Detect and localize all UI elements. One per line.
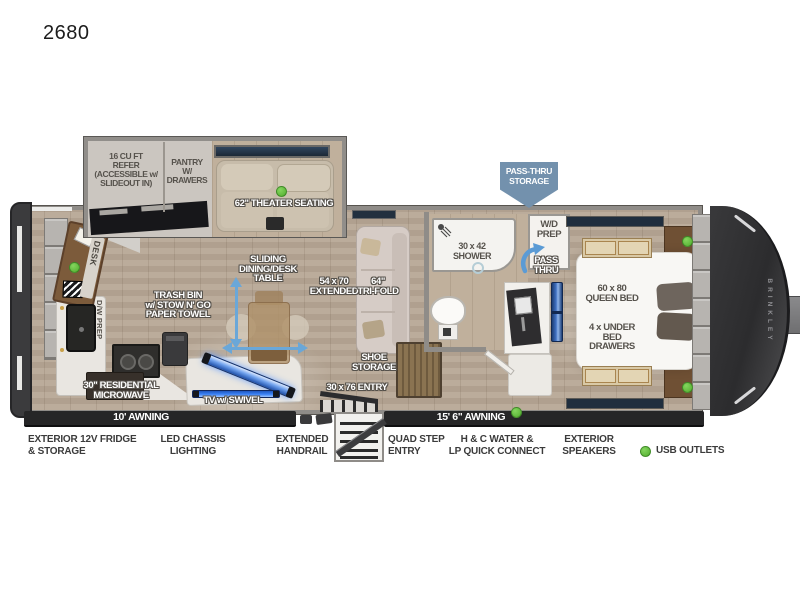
- usb-outlet-dot: [276, 186, 287, 197]
- table-slide-arrow-horizontal-icon: [226, 347, 304, 350]
- bedroom-dresser: [582, 366, 652, 386]
- shower-drain: [472, 262, 484, 274]
- bath-vanity: [504, 282, 550, 354]
- page-title: 2680: [43, 22, 90, 45]
- usb-legend-label: USB OUTLETS: [656, 445, 724, 457]
- trash-bin: [162, 332, 188, 366]
- front-cap: BRINKLEY: [710, 206, 790, 416]
- throw-pillow: [360, 237, 381, 256]
- vanity-sink: [514, 296, 533, 315]
- vanity-base: [508, 354, 552, 396]
- bedroom-window: [566, 216, 664, 227]
- usb-outlet-dot: [69, 262, 80, 273]
- queen-bed: [576, 252, 698, 370]
- caption-led-lighting: LED CHASSIS LIGHTING: [160, 434, 225, 457]
- wd-prep-label: W/D PREP: [530, 220, 568, 239]
- toilet-tank: [438, 324, 458, 340]
- brand-label: BRINKLEY: [766, 278, 773, 343]
- microwave-label: 30" RESIDENTIAL MICROWAVE: [83, 381, 158, 400]
- sofa-window: [352, 210, 396, 219]
- cap-accent: [734, 214, 756, 232]
- front-wardrobe: [692, 214, 712, 410]
- kitchen-sink: [66, 304, 96, 352]
- faucet-handle: [60, 348, 64, 352]
- theater-label: 62" THEATER SEATING: [235, 199, 333, 209]
- shoe-storage-label: SHOE STORAGE: [352, 353, 396, 372]
- theater-seating: [216, 160, 334, 232]
- table-extended-label: 54 x 70 EXTENDED: [310, 277, 359, 296]
- rear-window: [17, 226, 22, 292]
- bed-pillow: [656, 312, 695, 341]
- cap-accent: [734, 386, 756, 404]
- floorplan-canvas: 2680 16 CU FT REFER (ACCESSIBLE w/ SLIDE…: [0, 0, 800, 600]
- queen-bed-label: 60 x 80 QUEEN BED: [581, 284, 643, 303]
- usb-outlet-dot: [682, 382, 693, 393]
- pass-thru-storage-label: PASS-THRU STORAGE: [500, 167, 558, 186]
- led-wardrobe: [551, 282, 563, 342]
- cupholder: [266, 217, 284, 230]
- awning-right-label: 15' 6" AWNING: [437, 413, 505, 423]
- bath-wall: [424, 212, 429, 352]
- throw-pillow: [362, 319, 385, 339]
- awning-left-label: 10' AWNING: [113, 413, 169, 423]
- usb-outlet-dot: [682, 236, 693, 247]
- usb-outlet-dot: [511, 407, 522, 418]
- pantry-label: PANTRY W/ DRAWERS: [165, 158, 209, 185]
- under-bed-label: 4 x UNDER BED DRAWERS: [579, 323, 645, 352]
- caption-exterior-speakers: EXTERIOR SPEAKERS: [562, 434, 615, 457]
- trash-label: TRASH BIN w/ STOW N' GO PAPER TOWEL: [146, 291, 211, 320]
- caption-exterior-fridge: EXTERIOR 12V FRIDGE & STORAGE: [28, 434, 136, 457]
- entry-label: 30 x 76 ENTRY: [327, 383, 388, 393]
- desk-label: DESK: [88, 240, 103, 267]
- dw-prep-label: D/W PREP: [95, 300, 104, 340]
- refer-label: 16 CU FT REFER (ACCESSIBLE w/ SLIDEOUT I…: [90, 152, 162, 188]
- pass-thru-label: PASS THRU: [534, 256, 559, 275]
- bed-pillow: [656, 282, 696, 312]
- pass-thru-storage-callout: PASS-THRU STORAGE: [500, 162, 558, 208]
- side-window: [32, 207, 72, 211]
- tri-fold-label: 64" TRI-FOLD: [357, 277, 398, 296]
- faucet-handle: [60, 306, 64, 310]
- toilet: [430, 296, 466, 326]
- dining-table: [248, 302, 290, 364]
- shower-head-icon: [437, 223, 453, 239]
- handrail-icon: [315, 413, 332, 425]
- tv-label: TV w/ SWIVEL: [203, 396, 262, 406]
- handrail-icon: [300, 415, 312, 424]
- caption-water-connect: H & C WATER & LP QUICK CONNECT: [449, 434, 546, 457]
- bath-wall: [424, 347, 486, 352]
- awning-bar-right: [384, 411, 704, 427]
- table-slide-arrow-vertical-icon: [235, 281, 238, 345]
- usb-legend-dot: [640, 446, 651, 457]
- rear-window: [17, 356, 22, 390]
- caption-extended-handrail: EXTENDED HANDRAIL: [276, 434, 329, 457]
- sliding-table-label: SLIDING DINING/DESK TABLE: [239, 255, 297, 284]
- bedroom-dresser: [582, 238, 652, 258]
- entry-steps: [334, 412, 384, 462]
- caption-quad-step: QUAD STEP ENTRY: [388, 434, 445, 457]
- theater-window: [214, 145, 330, 158]
- shower-label: 30 x 42 SHOWER: [446, 242, 498, 261]
- bedroom-window: [566, 398, 664, 409]
